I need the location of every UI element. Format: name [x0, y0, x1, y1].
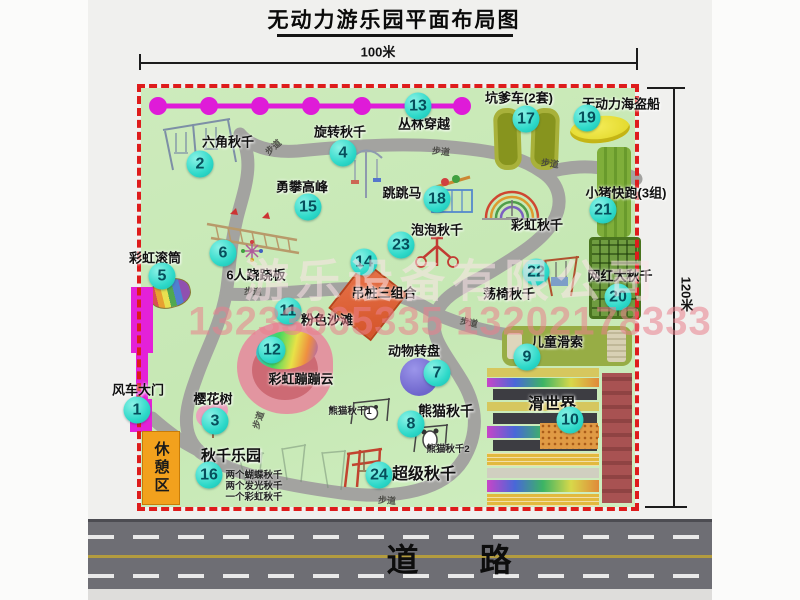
attraction-label-23: 泡泡秋千 — [411, 220, 463, 239]
attraction-label-9: 儿童滑索 — [531, 332, 583, 351]
road-label: 道 路 — [387, 535, 538, 581]
attraction-badge-13: 13 — [405, 93, 432, 120]
attraction-badge-21: 21 — [590, 197, 617, 224]
attraction-badge-14: 14 — [351, 249, 378, 276]
attraction-badge-9: 9 — [514, 344, 541, 371]
attraction-badge-17: 17 — [513, 106, 540, 133]
attraction-badge-2: 2 — [187, 151, 214, 178]
attraction-label-17: 坑爹车(2套) — [485, 88, 553, 107]
attraction-badge-11: 11 — [275, 298, 302, 325]
attraction-label-20: 网红大秋千 — [587, 266, 652, 285]
path-label-3: 步道 — [540, 155, 560, 170]
attraction-badge-4: 4 — [330, 140, 357, 167]
panda-swing-2-label: 熊猫秋千2 — [426, 441, 469, 455]
attraction-badge-16: 16 — [196, 462, 223, 489]
windmill-gate-top — [131, 287, 153, 353]
path-label-2: 步道 — [431, 144, 450, 159]
attraction-badge-10: 10 — [557, 407, 584, 434]
attraction-badge-24: 24 — [366, 462, 393, 489]
rest-area-label: 休憩区 — [151, 441, 172, 495]
bubble-swing-icon — [416, 238, 458, 267]
attraction-badge-7: 7 — [424, 360, 451, 387]
panda-swing-1-label: 熊猫秋千1 — [328, 403, 371, 417]
attraction-label-18: 跳跳马 — [382, 183, 421, 202]
attraction-label-2: 六角秋千 — [202, 132, 254, 151]
attraction-badge-3: 3 — [202, 408, 229, 435]
attraction-badge-12: 12 — [259, 337, 286, 364]
swing-park-detail-3: 一个彩虹秋千 — [225, 489, 282, 503]
attraction-badge-6: 6 — [210, 240, 237, 267]
attraction-badge-19: 19 — [574, 105, 601, 132]
attraction-badge-1: 1 — [124, 397, 151, 424]
attraction-label-15: 勇攀高峰 — [276, 177, 328, 196]
park-layout-map: 无动力游乐园平面布局图 100米 120米 — [0, 0, 800, 600]
path-label-7: 步道 — [378, 493, 397, 507]
rest-area: 休憩区 — [142, 431, 180, 505]
attraction-label-rainbow-swing: 彩虹秋千 — [511, 215, 563, 234]
attraction-label-4: 旋转秋千 — [314, 122, 366, 141]
attraction-label-3: 樱花树 — [193, 389, 232, 408]
attraction-label-22: 荡椅秋千 — [483, 284, 535, 303]
attraction-label-11: 粉色沙滩 — [301, 310, 353, 329]
attraction-badge-23: 23 — [388, 232, 415, 259]
attraction-badge-5: 5 — [149, 263, 176, 290]
attraction-badge-8: 8 — [398, 411, 425, 438]
attraction-label-14: 吊桩三组合 — [351, 283, 416, 302]
attraction-label-8: 熊猫秋千 — [418, 401, 474, 421]
attraction-label-12: 彩虹蹦蹦云 — [268, 369, 333, 388]
attraction-badge-15: 15 — [295, 194, 322, 221]
attraction-label-6: 6人跷跷板 — [226, 265, 285, 284]
road: 道 路 — [88, 519, 712, 592]
road-shoulder — [88, 589, 712, 600]
path-label-4: 步道 — [244, 284, 263, 298]
attraction-label-7: 动物转盘 — [388, 341, 440, 360]
attraction-badge-18: 18 — [424, 186, 451, 213]
attraction-badge-22: 22 — [523, 259, 550, 286]
attraction-label-24: 超级秋千 — [392, 460, 456, 484]
attraction-badge-20: 20 — [605, 284, 632, 311]
